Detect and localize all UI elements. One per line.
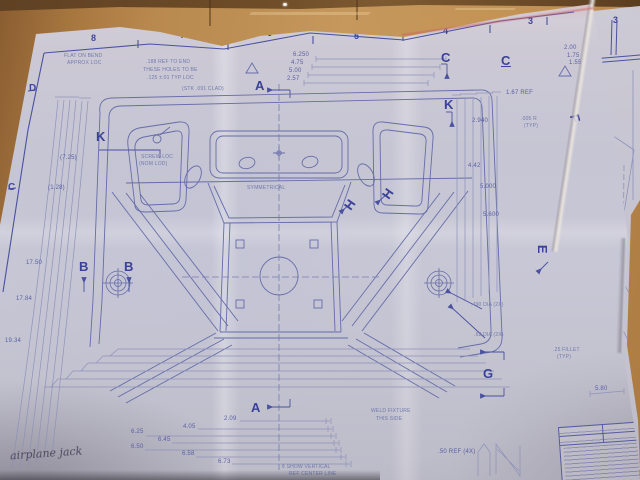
grid-col-8: 8 bbox=[91, 34, 96, 43]
note-top: (STK .091 CLAD) bbox=[182, 87, 224, 92]
dim-value: 4.42 bbox=[468, 163, 480, 169]
dim-value: 19.34 bbox=[5, 338, 21, 344]
cardboard-seam bbox=[356, 0, 358, 20]
section-marker-c-label: C bbox=[501, 54, 511, 67]
cardboard-scratch bbox=[454, 8, 516, 10]
section-marker-b-left: B bbox=[79, 260, 89, 273]
section-marker-h-left: H bbox=[342, 197, 358, 213]
dim-value: 6.50 bbox=[131, 444, 143, 450]
note-symmetry: SYMMETRICAL bbox=[247, 186, 285, 191]
note-hole-dia: .490 DIA (2X) bbox=[471, 303, 504, 308]
dim-value: 2.57 bbox=[287, 76, 299, 82]
dim-value: 2.940 bbox=[472, 118, 488, 124]
blueprint-linework bbox=[0, 0, 640, 480]
dim-value: (7.25) bbox=[60, 155, 77, 161]
note-radius: (TYP) bbox=[524, 124, 538, 129]
main-blueprint-sheet: 8 7 6 5 4 3 D C A A B B C C E F G H H K … bbox=[0, 0, 640, 480]
grid-col-3: 3 bbox=[528, 17, 533, 26]
dim-value: 6.45 bbox=[158, 437, 170, 443]
note-pocket: SCREW LOC bbox=[141, 155, 173, 160]
dim-value: 6.58 bbox=[182, 451, 194, 457]
note-corner: FLAT ON BEND bbox=[64, 54, 102, 59]
section-marker-k-left: K bbox=[96, 130, 106, 143]
note-fillet: (TYP) bbox=[557, 355, 571, 360]
section-arrows bbox=[84, 64, 548, 407]
dim-value: 5.80 bbox=[595, 386, 607, 392]
section-marker-a-bottom: A bbox=[251, 401, 261, 414]
dim-value: 1.67 REF bbox=[506, 90, 533, 96]
note-top: .188 REF TO END bbox=[146, 60, 190, 65]
dim-value: 5.000 bbox=[480, 184, 496, 190]
section-marker-g: G bbox=[483, 367, 494, 380]
dim-value: 17.50 bbox=[26, 260, 42, 266]
dim-value: 2.09 bbox=[224, 416, 236, 422]
section-marker-b-right: B bbox=[124, 260, 134, 273]
sheet2-grid-number: 3 bbox=[613, 16, 618, 25]
note-corner: APPROX LOC bbox=[67, 61, 102, 66]
note-radius: .005 R bbox=[521, 117, 537, 122]
note-top: THESE HOLES TO BE bbox=[143, 68, 198, 73]
dim-value: (1.28) bbox=[48, 185, 65, 191]
cardboard-seam bbox=[209, 0, 211, 26]
dim-value: 4.75 bbox=[291, 60, 303, 66]
note-top: .125 ±.01 TYP LOC bbox=[147, 76, 194, 81]
dim-value: 2.00 bbox=[564, 45, 576, 51]
cardboard-scratch bbox=[249, 12, 372, 15]
dim-value: 1.75 bbox=[567, 53, 579, 59]
section-marker-k-top: K bbox=[444, 98, 454, 111]
note-hole-dia: .62 DIA (2X) bbox=[474, 333, 504, 338]
dim-value: 5.600 bbox=[483, 212, 499, 218]
note-pocket: (NOM LOD) bbox=[139, 162, 167, 167]
title-block-notes-text bbox=[563, 442, 640, 480]
grid-row-d: D bbox=[29, 84, 36, 94]
title-block-cell bbox=[603, 431, 640, 442]
dim-value: 5.00 bbox=[289, 68, 301, 74]
note-weld: WELD FIXTURE bbox=[371, 409, 411, 414]
section-marker-e: E bbox=[536, 245, 549, 254]
part-outline bbox=[90, 63, 571, 403]
grid-row-c: C bbox=[8, 183, 15, 193]
note-fillet: .25 FILLET bbox=[553, 348, 580, 353]
note-weld: THIS SIDE bbox=[376, 417, 402, 422]
section-marker-h-right: H bbox=[380, 186, 396, 202]
title-block bbox=[558, 421, 640, 480]
centerlines bbox=[182, 84, 380, 470]
dim-value: .50 REF (4X) bbox=[438, 449, 475, 455]
photo-of-blueprint: 3 bbox=[0, 0, 640, 480]
dim-value: 6.73 bbox=[218, 459, 230, 465]
title-block-cell bbox=[560, 434, 604, 445]
datum-targets bbox=[103, 268, 454, 298]
dim-value: 6.25 bbox=[131, 429, 143, 435]
dust-speck bbox=[283, 3, 287, 6]
section-marker-c-arrow: C bbox=[441, 51, 451, 64]
bottom-edge-shadow bbox=[0, 470, 380, 480]
section-marker-a-top: A bbox=[255, 79, 265, 92]
dim-value: 6.250 bbox=[293, 52, 309, 58]
dim-value: 4.05 bbox=[183, 424, 195, 430]
dim-value: 17.84 bbox=[16, 296, 32, 302]
